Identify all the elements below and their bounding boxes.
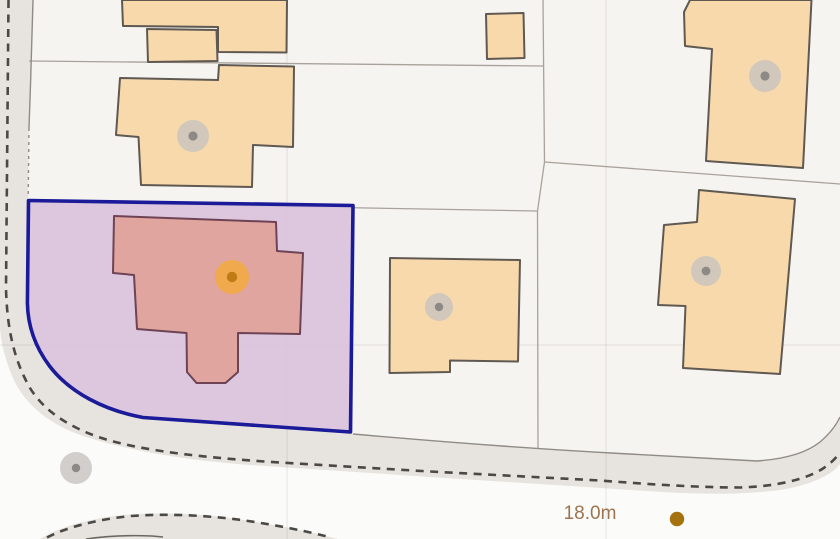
marker-center-dot — [435, 303, 443, 311]
selected-marker-center-dot — [227, 272, 237, 282]
selected-building-marker-icon[interactable] — [215, 260, 249, 294]
road-marker-icon — [60, 452, 92, 484]
building-marker-icon — [425, 293, 453, 321]
building-middle[interactable] — [390, 258, 521, 373]
building-marker-icon — [691, 256, 721, 286]
marker-center-dot — [760, 71, 769, 80]
marker-center-dot — [72, 464, 80, 472]
marker-center-dot — [702, 267, 711, 276]
building-small-square[interactable] — [486, 13, 525, 59]
map-viewport[interactable]: 18.0m — [0, 0, 840, 539]
building-marker-icon — [749, 60, 781, 92]
building-top-annex[interactable] — [147, 29, 218, 62]
building-marker-icon — [177, 120, 209, 152]
measurement-dot — [670, 512, 684, 526]
measurement-label: 18.0m — [564, 503, 617, 524]
parcel-map-svg: 18.0m — [0, 0, 840, 539]
marker-center-dot — [188, 131, 197, 140]
